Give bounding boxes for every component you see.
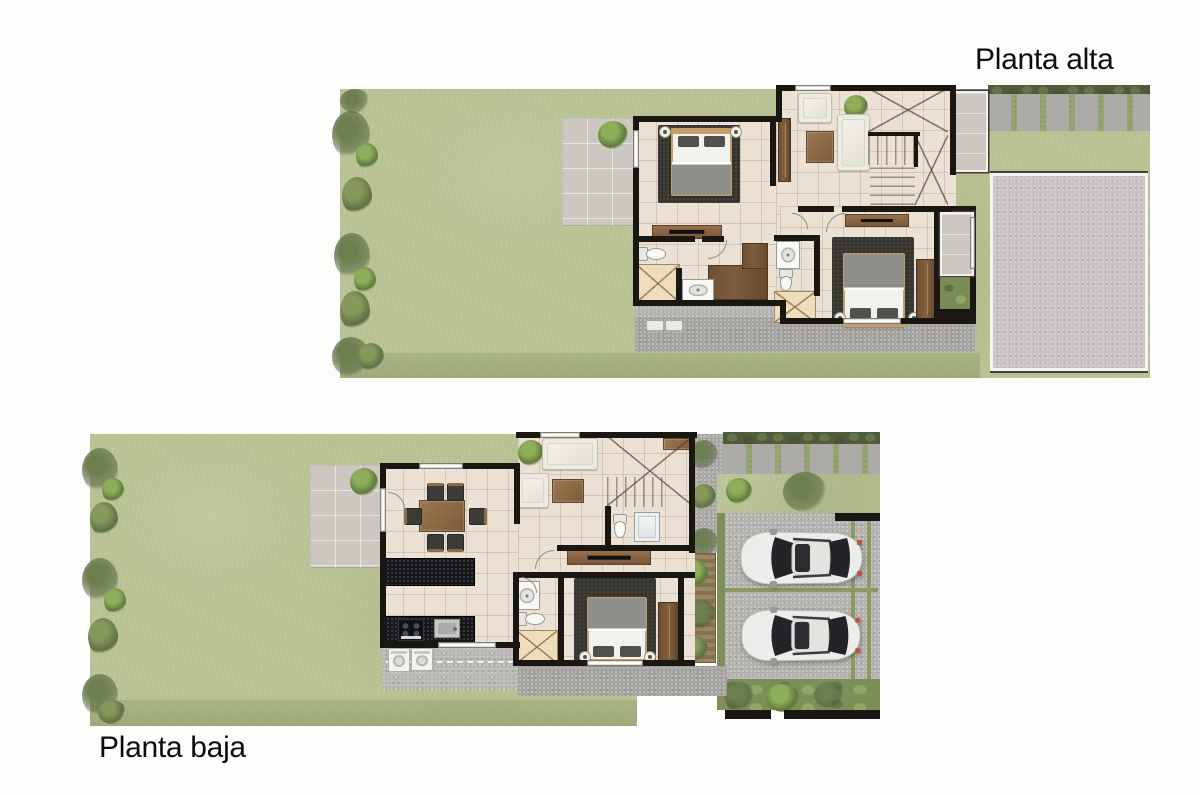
paver-joint (725, 588, 878, 592)
pillow-icon (620, 646, 641, 657)
coffee-table (806, 131, 834, 163)
coffee-table (552, 479, 584, 503)
wall (842, 206, 952, 212)
bed-icon (671, 128, 732, 196)
sofa-icon (542, 438, 598, 470)
vanity-sink-icon (682, 279, 714, 301)
headboard (671, 128, 732, 134)
bush-icon (98, 700, 126, 724)
bush-icon (104, 588, 126, 614)
wall (780, 300, 786, 324)
planting-strip (717, 513, 725, 679)
stair-void (868, 88, 948, 132)
wardrobe (658, 602, 680, 662)
lawn-shade (340, 353, 980, 378)
ac-unit-icon (665, 320, 683, 331)
stove-icon (398, 619, 424, 641)
window (438, 642, 496, 648)
bush-icon (358, 343, 384, 371)
stair-run (870, 167, 915, 205)
bed-icon (587, 597, 647, 665)
kitchen-island (385, 558, 475, 586)
dining-chair-icon (469, 508, 487, 525)
nightstand-icon (659, 126, 671, 138)
shrub-icon (350, 468, 378, 496)
window (633, 130, 639, 168)
wall (814, 238, 820, 296)
window-bay (940, 212, 974, 276)
wall (605, 506, 611, 546)
stair-run (607, 477, 663, 507)
wall (784, 710, 880, 719)
paver-walkway (988, 94, 1150, 131)
stair-wall (868, 132, 920, 136)
bush-icon (102, 478, 124, 502)
bush-icon (356, 143, 378, 169)
toilet-icon (638, 246, 666, 262)
bush-icon (814, 682, 844, 708)
label-planta-baja: Planta baja (99, 733, 246, 763)
pillow-icon (704, 136, 725, 147)
nightstand-icon (730, 126, 742, 138)
window (587, 660, 643, 666)
blanket (672, 162, 731, 195)
dining-chair-icon (447, 534, 464, 552)
wall (725, 710, 771, 719)
pillow-icon (678, 136, 699, 147)
bush-icon (354, 267, 376, 293)
shower-icon (636, 264, 680, 303)
window (795, 85, 831, 91)
dining-chair-icon (427, 483, 444, 501)
ac-unit-icon (646, 320, 664, 331)
wall (676, 268, 682, 306)
wall (770, 116, 776, 186)
blanket (588, 598, 646, 631)
bush-icon (726, 478, 752, 504)
floor-plan-planta-baja (90, 432, 880, 728)
floor-plan-planta-alta (340, 85, 1150, 381)
plant-icon (518, 440, 544, 466)
wall (835, 513, 880, 521)
kitchen-sink-icon (434, 619, 460, 638)
dryer-icon (411, 648, 433, 671)
paver-walkway (723, 444, 880, 474)
stair-run-diagonal (915, 135, 948, 205)
pergola (940, 277, 970, 309)
wall (776, 85, 782, 122)
media-cabinet (778, 118, 791, 182)
service-sidewalk (518, 666, 727, 696)
wall (633, 236, 695, 242)
bush-icon (766, 684, 800, 712)
dining-chair-icon (447, 483, 464, 501)
hedge (988, 85, 1150, 94)
shower-icon (634, 512, 660, 542)
armchair-icon (798, 93, 832, 123)
shrub-icon (598, 121, 628, 149)
bed-icon (843, 253, 905, 327)
toilet-icon (517, 611, 545, 627)
tv-console (845, 214, 909, 227)
vanity-sink-icon (776, 241, 800, 269)
window (540, 432, 580, 438)
wall (950, 85, 956, 175)
car-icon (737, 529, 865, 587)
walk-in-closet-floor (708, 265, 768, 300)
wall (558, 578, 564, 660)
dining-chair-icon (427, 534, 444, 552)
bush-icon (342, 177, 372, 215)
window (419, 463, 463, 469)
wall (689, 432, 695, 553)
label-planta-alta: Planta alta (975, 45, 1113, 75)
walk-in-closet-floor (742, 243, 768, 269)
roof-slab (990, 173, 1148, 371)
paver-joint (867, 513, 871, 679)
page-canvas: Planta alta Planta baja (0, 0, 1200, 795)
stair-wall (914, 132, 918, 167)
wall (633, 116, 780, 122)
toilet-icon (778, 269, 794, 291)
washer-icon (388, 648, 410, 672)
wall (514, 468, 520, 524)
bush-icon (724, 682, 754, 710)
wall (798, 206, 834, 212)
wall (678, 572, 684, 666)
lawn-shade (90, 700, 637, 726)
sofa-icon (837, 114, 870, 171)
window (970, 217, 975, 269)
blanket (844, 254, 904, 290)
toilet-icon (612, 514, 628, 538)
window (843, 318, 901, 324)
wall (633, 300, 786, 306)
window (380, 488, 386, 532)
shower-icon (516, 630, 558, 664)
dining-table (419, 500, 465, 532)
wall (513, 572, 519, 666)
tv-console (567, 550, 651, 565)
bush-icon (90, 502, 118, 536)
dining-chair-icon (404, 508, 422, 525)
balcony (954, 91, 988, 172)
car-icon (738, 607, 863, 664)
wall (513, 572, 695, 578)
bush-icon (692, 484, 716, 510)
hedge (723, 432, 880, 444)
armchair-icon (517, 473, 549, 508)
pillow-icon (593, 646, 614, 657)
bush-icon (340, 291, 370, 331)
stair-run (868, 135, 915, 165)
bush-icon (88, 618, 118, 656)
wall (557, 545, 695, 551)
palm-icon (783, 472, 827, 512)
bush-icon (340, 89, 370, 113)
